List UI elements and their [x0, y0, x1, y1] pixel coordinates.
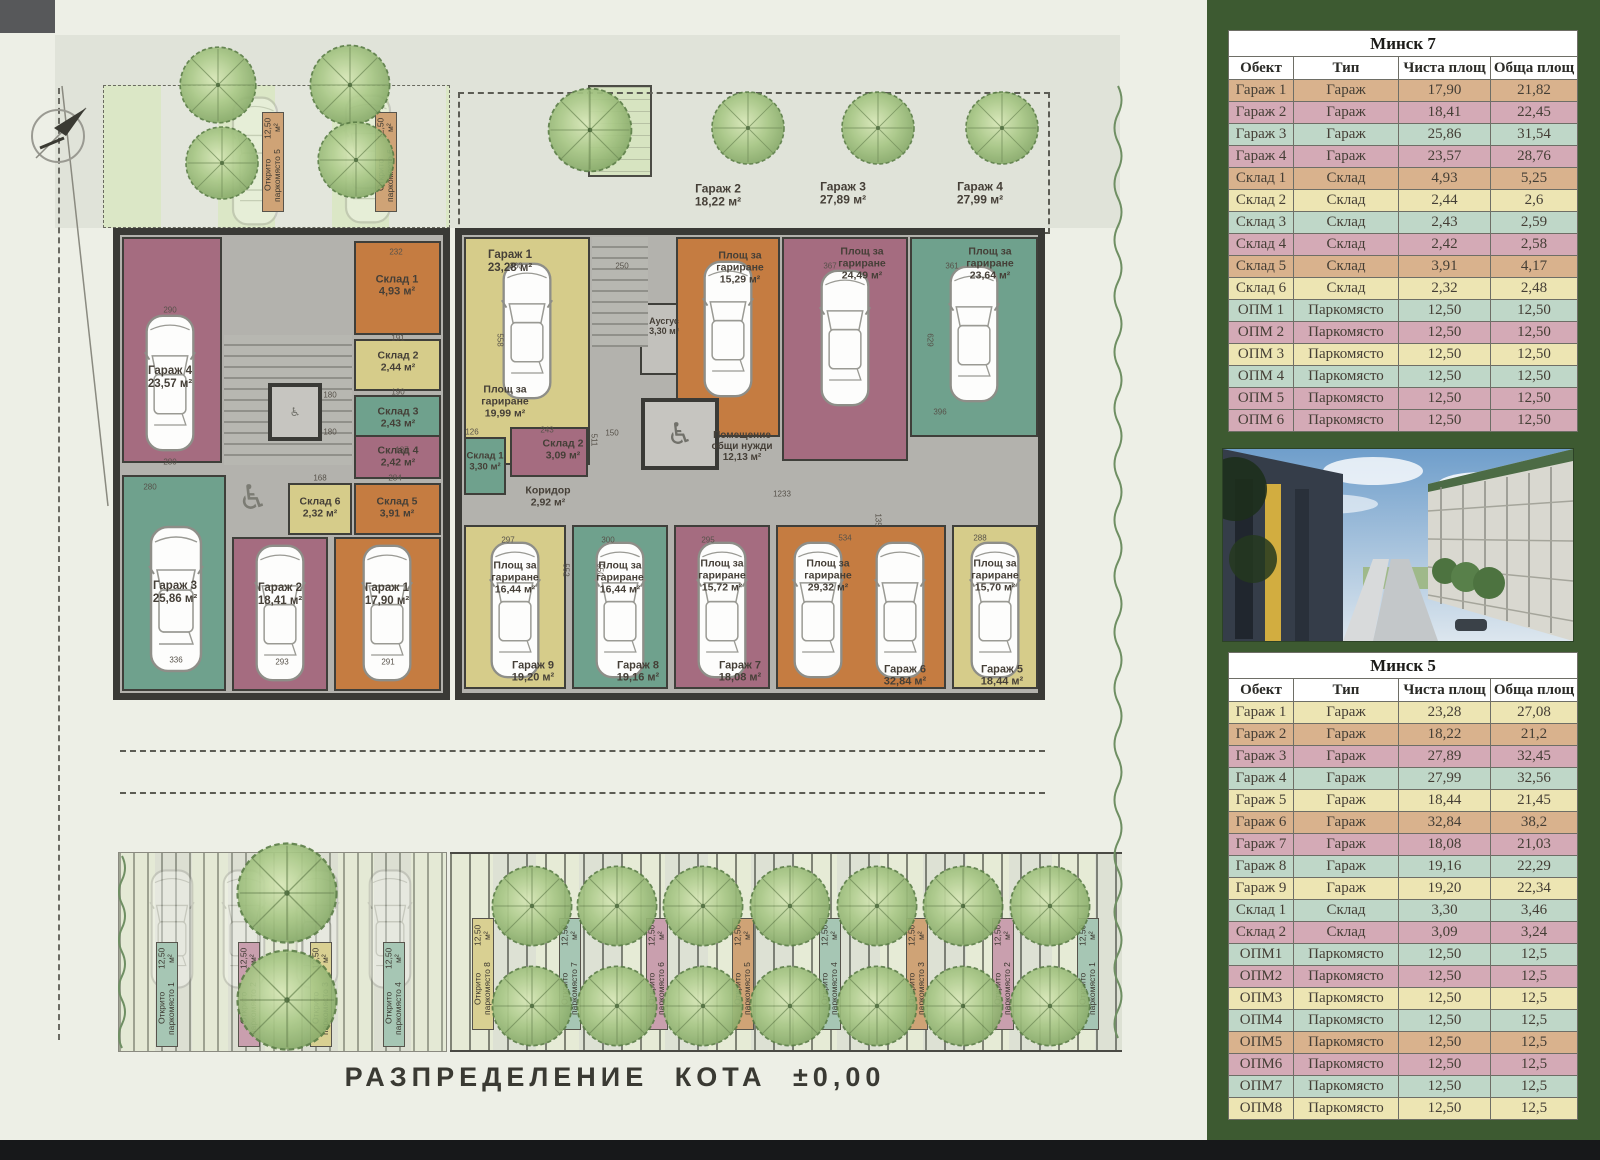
- table-cell: 12,50: [1491, 300, 1578, 322]
- table-cell: 12,50: [1491, 344, 1578, 366]
- table-row: Гараж 3Гараж25,8631,54: [1229, 124, 1578, 146]
- table-row: ОПМ 2Паркомясто12,5012,50: [1229, 322, 1578, 344]
- table-row: Гараж 9Гараж19,2022,34: [1229, 878, 1578, 900]
- tree-icon: [746, 962, 834, 1050]
- table-cell: Склад 6: [1229, 278, 1294, 300]
- label-m5-garage6: Гараж 632,84 м²: [884, 664, 926, 689]
- table-cell: 3,46: [1491, 900, 1578, 922]
- table-cell: Паркомясто: [1294, 1054, 1399, 1076]
- table-minsk5: Минск 5ОбектТипЧиста площОбща площГараж …: [1228, 652, 1578, 1120]
- table-cell: 12,50: [1399, 966, 1491, 988]
- tree-icon: [544, 84, 636, 176]
- table-cell: 21,03: [1491, 834, 1578, 856]
- table-cell: 23,28: [1399, 702, 1491, 724]
- table-cell: 12,5: [1491, 944, 1578, 966]
- table-cell: Склад 1: [1229, 168, 1294, 190]
- table-cell: Гараж: [1294, 834, 1399, 856]
- table-header-row: ОбектТипЧиста площОбща площ: [1229, 679, 1578, 702]
- label-m7-garage2: Гараж 218,41 м²: [258, 582, 302, 608]
- table-cell: 22,45: [1491, 102, 1578, 124]
- stall-m7-1: Открито паркомясто 112,50 м²: [156, 942, 178, 1047]
- table-cell: 4,93: [1399, 168, 1491, 190]
- table-cell: Гараж: [1294, 80, 1399, 102]
- table-cell: 19,20: [1399, 878, 1491, 900]
- table-row: ОПМ4Паркомясто12,5012,5: [1229, 1010, 1578, 1032]
- table-cell: 2,59: [1491, 212, 1578, 234]
- car-icon: [252, 540, 308, 686]
- table-row: Склад 2Склад2,442,6: [1229, 190, 1578, 212]
- tree-icon: [746, 862, 834, 950]
- table-cell: 3,24: [1491, 922, 1578, 944]
- tree-icon: [306, 41, 394, 129]
- label-m5-garage9: Гараж 919,20 м²: [512, 660, 554, 685]
- table-cell: 32,45: [1491, 746, 1578, 768]
- table-row: ОПМ6Паркомясто12,5012,5: [1229, 1054, 1578, 1076]
- table-row: Склад 5Склад3,914,17: [1229, 256, 1578, 278]
- label-m5-g5-area: Площ за гариране15,70 м²: [956, 558, 1034, 593]
- stairs-m5: [592, 237, 648, 347]
- label-dashed-garage4: Гараж 427,99 м²: [957, 181, 1003, 208]
- table-cell: Гараж: [1294, 878, 1399, 900]
- table-cell: 12,50: [1399, 1054, 1491, 1076]
- table-cell: Гараж 7: [1229, 834, 1294, 856]
- label-m7-sklad4: Склад 42,42 м²: [378, 445, 419, 469]
- table-row: Гараж 5Гараж18,4421,45: [1229, 790, 1578, 812]
- table-cell: 12,5: [1491, 1010, 1578, 1032]
- table-cell: ОПМ 5: [1229, 388, 1294, 410]
- table-row: ОПМ1Паркомясто12,5012,5: [1229, 944, 1578, 966]
- table-row: Склад 1Склад3,303,46: [1229, 900, 1578, 922]
- table-cell: Паркомясто: [1294, 410, 1399, 432]
- table-cell: Склад: [1294, 212, 1399, 234]
- label-m7-sklad3: Склад 32,43 м²: [378, 406, 419, 430]
- table-cell: 12,50: [1399, 344, 1491, 366]
- bottom-bar: [0, 1140, 1600, 1160]
- table-row: Гараж 4Гараж27,9932,56: [1229, 768, 1578, 790]
- table-cell: 12,5: [1491, 1054, 1578, 1076]
- column-header: Тип: [1294, 679, 1399, 702]
- corner-box: [0, 0, 55, 33]
- tree-icon: [573, 862, 661, 950]
- table-cell: 12,50: [1491, 366, 1578, 388]
- table-cell: Паркомясто: [1294, 966, 1399, 988]
- table-cell: 18,44: [1399, 790, 1491, 812]
- label-dashed-garage2: Гараж 218,22 м²: [695, 183, 741, 210]
- label-m7-sklad1: Склад 14,93 м²: [376, 274, 419, 299]
- tree-icon: [833, 962, 921, 1050]
- tree-icon: [833, 862, 921, 950]
- table-row: ОПМ5Паркомясто12,5012,5: [1229, 1032, 1578, 1054]
- table-cell: 12,50: [1399, 1010, 1491, 1032]
- table-cell: ОПМ8: [1229, 1098, 1294, 1120]
- table-cell: 2,32: [1399, 278, 1491, 300]
- table-cell: 12,50: [1491, 322, 1578, 344]
- table-row: Гараж 3Гараж27,8932,45: [1229, 746, 1578, 768]
- table-cell: Гараж: [1294, 102, 1399, 124]
- table-cell: 12,50: [1399, 300, 1491, 322]
- column-header: Обект: [1229, 57, 1294, 80]
- label-m7-sklad5: Склад 53,91 м²: [377, 496, 418, 520]
- table-cell: Гараж 8: [1229, 856, 1294, 878]
- label-m5-obshti: Помещение общи нужди12,13 м²: [703, 430, 781, 464]
- table-cell: 2,58: [1491, 234, 1578, 256]
- table-cell: 12,5: [1491, 1032, 1578, 1054]
- table-row: Склад 1Склад4,935,25: [1229, 168, 1578, 190]
- boundary-dashed-left: [58, 88, 60, 1040]
- elevator-m7: ♿: [268, 383, 322, 441]
- table-row: Склад 3Склад2,432,59: [1229, 212, 1578, 234]
- stall-m7-5: Открито паркомясто 512,50 м²: [262, 112, 284, 212]
- table-cell: ОПМ 2: [1229, 322, 1294, 344]
- table-cell: Гараж 3: [1229, 746, 1294, 768]
- tree-icon: [176, 43, 260, 127]
- table-row: ОПМ 5Паркомясто12,5012,50: [1229, 388, 1578, 410]
- table-cell: Склад 3: [1229, 212, 1294, 234]
- table-cell: 18,08: [1399, 834, 1491, 856]
- tree-icon: [919, 962, 1007, 1050]
- label-m5-ausgus: Аусгус3,30 м²: [649, 316, 679, 336]
- table-cell: Гараж 6: [1229, 812, 1294, 834]
- table-cell: Паркомясто: [1294, 344, 1399, 366]
- label-m7-garage4: Гараж 423,57 м²: [148, 365, 192, 391]
- table-row: Гараж 1Гараж23,2827,08: [1229, 702, 1578, 724]
- table-cell: 32,84: [1399, 812, 1491, 834]
- column-header: Обща площ: [1491, 679, 1578, 702]
- table-row: Склад 4Склад2,422,58: [1229, 234, 1578, 256]
- table-cell: Склад: [1294, 900, 1399, 922]
- table-title-row: Минск 7: [1229, 31, 1578, 57]
- table-row: ОПМ2Паркомясто12,5012,5: [1229, 966, 1578, 988]
- tree-icon: [182, 123, 262, 203]
- label-m5-park-b: Площ за гариране15,29 м²: [701, 250, 779, 285]
- tree-icon: [488, 862, 576, 950]
- table-cell: 2,42: [1399, 234, 1491, 256]
- table-cell: Гараж: [1294, 124, 1399, 146]
- table-cell: 27,99: [1399, 768, 1491, 790]
- table-cell: Склад 2: [1229, 190, 1294, 212]
- table-cell: 12,50: [1399, 944, 1491, 966]
- table-cell: 12,5: [1491, 1098, 1578, 1120]
- label-dashed-garage3: Гараж 327,89 м²: [820, 181, 866, 208]
- table-row: Гараж 1Гараж17,9021,82: [1229, 80, 1578, 102]
- label-m5-park-a: Площ за гариране19,99 м²: [466, 384, 544, 419]
- table-cell: 3,09: [1399, 922, 1491, 944]
- table-cell: 12,50: [1399, 1032, 1491, 1054]
- table-cell: Гараж: [1294, 768, 1399, 790]
- column-header: Обект: [1229, 679, 1294, 702]
- label-m7-sklad6: Склад 62,32 м²: [300, 496, 341, 520]
- column-header: Обща площ: [1491, 57, 1578, 80]
- aisle-dashed-line-2: [120, 792, 1045, 794]
- tree-icon: [659, 962, 747, 1050]
- table-cell: 12,50: [1399, 1076, 1491, 1098]
- table-cell: 12,50: [1399, 988, 1491, 1010]
- table-row: Склад 2Склад3,093,24: [1229, 922, 1578, 944]
- table-cell: Склад: [1294, 278, 1399, 300]
- table-cell: ОПМ3: [1229, 988, 1294, 1010]
- table-cell: ОПМ2: [1229, 966, 1294, 988]
- column-header: Чиста площ: [1399, 679, 1491, 702]
- table-cell: Паркомясто: [1294, 1032, 1399, 1054]
- table-cell: 12,50: [1491, 410, 1578, 432]
- table-cell: Гараж 4: [1229, 768, 1294, 790]
- label-m5-g7-area: Площ за гариране15,72 м²: [683, 558, 761, 593]
- table-cell: Склад: [1294, 256, 1399, 278]
- table-cell: Гараж 9: [1229, 878, 1294, 900]
- table-cell: ОПМ 6: [1229, 410, 1294, 432]
- north-compass-icon: [24, 100, 94, 170]
- table-cell: 31,54: [1491, 124, 1578, 146]
- table-cell: ОПМ 1: [1229, 300, 1294, 322]
- table-cell: 18,41: [1399, 102, 1491, 124]
- table-cell: ОПМ5: [1229, 1032, 1294, 1054]
- table-cell: Гараж: [1294, 812, 1399, 834]
- label-m5-g9-area: Площ за гариране16,44 м²: [476, 560, 554, 595]
- table-row: Гараж 6Гараж32,8438,2: [1229, 812, 1578, 834]
- table-cell: 12,50: [1399, 388, 1491, 410]
- tree-icon: [488, 962, 576, 1050]
- column-header: Тип: [1294, 57, 1399, 80]
- table-cell: 2,48: [1491, 278, 1578, 300]
- tree-icon: [1006, 962, 1094, 1050]
- table-cell: 27,08: [1491, 702, 1578, 724]
- table-cell: 12,50: [1491, 388, 1578, 410]
- render-photo: [1222, 448, 1574, 642]
- table-row: ОПМ 3Паркомясто12,5012,50: [1229, 344, 1578, 366]
- table-cell: 27,89: [1399, 746, 1491, 768]
- label-m5-garage7: Гараж 718,08 м²: [719, 660, 761, 685]
- table-cell: 18,22: [1399, 724, 1491, 746]
- table-cell: 12,5: [1491, 988, 1578, 1010]
- table-cell: Гараж: [1294, 746, 1399, 768]
- table-cell: Паркомясто: [1294, 300, 1399, 322]
- aisle-dashed-line-1: [120, 750, 1045, 752]
- table-cell: 38,2: [1491, 812, 1578, 834]
- label-m7-garage1: Гараж 117,90 м²: [365, 582, 409, 608]
- label-m5-garage1: Гараж 123,28 м²: [488, 249, 532, 275]
- table-cell: 21,2: [1491, 724, 1578, 746]
- table-cell: 2,6: [1491, 190, 1578, 212]
- table-cell: 32,56: [1491, 768, 1578, 790]
- table-row: ОПМ3Паркомясто12,5012,5: [1229, 988, 1578, 1010]
- tree-icon: [1006, 862, 1094, 950]
- label-m5-g8-area: Площ за гариране16,44 м²: [581, 560, 659, 595]
- table-cell: Гараж: [1294, 856, 1399, 878]
- table-cell: 12,5: [1491, 1076, 1578, 1098]
- tree-icon: [659, 862, 747, 950]
- table-cell: Склад 2: [1229, 922, 1294, 944]
- stall-m7-4: Открито паркомясто 412,50 м²: [383, 942, 405, 1047]
- tree-icon: [838, 88, 918, 168]
- plan-title: РАЗПРЕДЕЛЕНИЕ КОТА ±0,00: [300, 1062, 930, 1093]
- table-cell: ОПМ1: [1229, 944, 1294, 966]
- tree-icon: [919, 862, 1007, 950]
- table-cell: ОПМ7: [1229, 1076, 1294, 1098]
- table-cell: 25,86: [1399, 124, 1491, 146]
- tree-icon: [962, 88, 1042, 168]
- table-cell: 12,50: [1399, 366, 1491, 388]
- table-cell: Паркомясто: [1294, 944, 1399, 966]
- table-row: Гараж 7Гараж18,0821,03: [1229, 834, 1578, 856]
- table-header-row: ОбектТипЧиста площОбща площ: [1229, 57, 1578, 80]
- table-cell: Паркомясто: [1294, 388, 1399, 410]
- table-cell: Паркомясто: [1294, 1076, 1399, 1098]
- table-minsk7: Минск 7ОбектТипЧиста площОбща площГараж …: [1228, 30, 1578, 432]
- car-icon: [872, 540, 928, 680]
- table-cell: 12,50: [1399, 1098, 1491, 1120]
- table-cell: Паркомясто: [1294, 1010, 1399, 1032]
- label-m5-garage8: Гараж 819,16 м²: [617, 660, 659, 685]
- table-row: Гараж 8Гараж19,1622,29: [1229, 856, 1578, 878]
- label-m5-park-d: Площ за гариране23,64 м²: [951, 246, 1029, 281]
- table-cell: ОПМ 3: [1229, 344, 1294, 366]
- table-cell: 2,44: [1399, 190, 1491, 212]
- table-cell: 3,30: [1399, 900, 1491, 922]
- label-m5-sklad1: Склад 13,30 м²: [466, 451, 503, 472]
- table-cell: 5,25: [1491, 168, 1578, 190]
- label-m5-sklad2: Склад 23,09 м²: [543, 438, 584, 462]
- table-cell: Склад 4: [1229, 234, 1294, 256]
- table-cell: Гараж 1: [1229, 80, 1294, 102]
- table-cell: Гараж 2: [1229, 102, 1294, 124]
- tree-icon: [708, 88, 788, 168]
- label-m5-koridor: Коридор2,92 м²: [525, 485, 570, 509]
- table-cell: 2,43: [1399, 212, 1491, 234]
- table-row: ОПМ7Паркомясто12,5012,5: [1229, 1076, 1578, 1098]
- table-cell: Гараж 2: [1229, 724, 1294, 746]
- table-row: Гараж 2Гараж18,4122,45: [1229, 102, 1578, 124]
- table-cell: 12,50: [1399, 410, 1491, 432]
- table-cell: Паркомясто: [1294, 1098, 1399, 1120]
- table-cell: Гараж: [1294, 724, 1399, 746]
- label-m7-garage3: Гараж 325,86 м²: [153, 580, 197, 606]
- table-cell: Паркомясто: [1294, 322, 1399, 344]
- table-cell: Гараж 1: [1229, 702, 1294, 724]
- table-cell: 17,90: [1399, 80, 1491, 102]
- tree-icon: [232, 838, 342, 948]
- table-cell: Гараж 3: [1229, 124, 1294, 146]
- table-cell: Паркомясто: [1294, 988, 1399, 1010]
- table-cell: 28,76: [1491, 146, 1578, 168]
- table-row: Гараж 4Гараж23,5728,76: [1229, 146, 1578, 168]
- table-cell: Гараж 5: [1229, 790, 1294, 812]
- label-m5-park-c: Площ за гариране24,49 м²: [823, 246, 901, 281]
- table-row: Гараж 2Гараж18,2221,2: [1229, 724, 1578, 746]
- table-cell: ОПМ6: [1229, 1054, 1294, 1076]
- table-row: ОПМ 6Паркомясто12,5012,50: [1229, 410, 1578, 432]
- table-cell: 4,17: [1491, 256, 1578, 278]
- tree-icon: [573, 962, 661, 1050]
- tree-icon: [232, 945, 342, 1055]
- table-cell: Паркомясто: [1294, 366, 1399, 388]
- table-cell: 12,50: [1399, 322, 1491, 344]
- label-m7-sklad2: Склад 22,44 м²: [378, 350, 419, 374]
- table-cell: 21,82: [1491, 80, 1578, 102]
- table-cell: Склад: [1294, 922, 1399, 944]
- table-cell: Склад: [1294, 234, 1399, 256]
- table-cell: Склад 1: [1229, 900, 1294, 922]
- table-cell: Гараж 4: [1229, 146, 1294, 168]
- table-cell: 22,29: [1491, 856, 1578, 878]
- car-icon: [359, 540, 415, 686]
- table-cell: ОПМ 4: [1229, 366, 1294, 388]
- column-header: Чиста площ: [1399, 57, 1491, 80]
- label-m5-g6-area: Площ за гариране29,32 м²: [789, 558, 867, 593]
- wheelchair-icon-m7: ♿: [228, 478, 278, 518]
- table-row: Склад 6Склад2,322,48: [1229, 278, 1578, 300]
- table-cell: 12,5: [1491, 966, 1578, 988]
- label-m5-garage5: Гараж 518,44 м²: [981, 664, 1023, 689]
- table-cell: 22,34: [1491, 878, 1578, 900]
- table-row: ОПМ 1Паркомясто12,5012,50: [1229, 300, 1578, 322]
- table-cell: Гараж: [1294, 790, 1399, 812]
- car-icon: [817, 258, 873, 418]
- table-cell: Склад 5: [1229, 256, 1294, 278]
- table-title-row: Минск 5: [1229, 653, 1578, 679]
- table-cell: Гараж: [1294, 702, 1399, 724]
- table-cell: Гараж: [1294, 146, 1399, 168]
- table-cell: 19,16: [1399, 856, 1491, 878]
- table-cell: Склад: [1294, 168, 1399, 190]
- table-row: ОПМ8Паркомясто12,5012,5: [1229, 1098, 1578, 1120]
- table-cell: ОПМ4: [1229, 1010, 1294, 1032]
- table-cell: Склад: [1294, 190, 1399, 212]
- table-cell: 3,91: [1399, 256, 1491, 278]
- table-row: ОПМ 4Паркомясто12,5012,50: [1229, 366, 1578, 388]
- tree-icon: [314, 118, 398, 202]
- table-cell: 23,57: [1399, 146, 1491, 168]
- table-cell: 21,45: [1491, 790, 1578, 812]
